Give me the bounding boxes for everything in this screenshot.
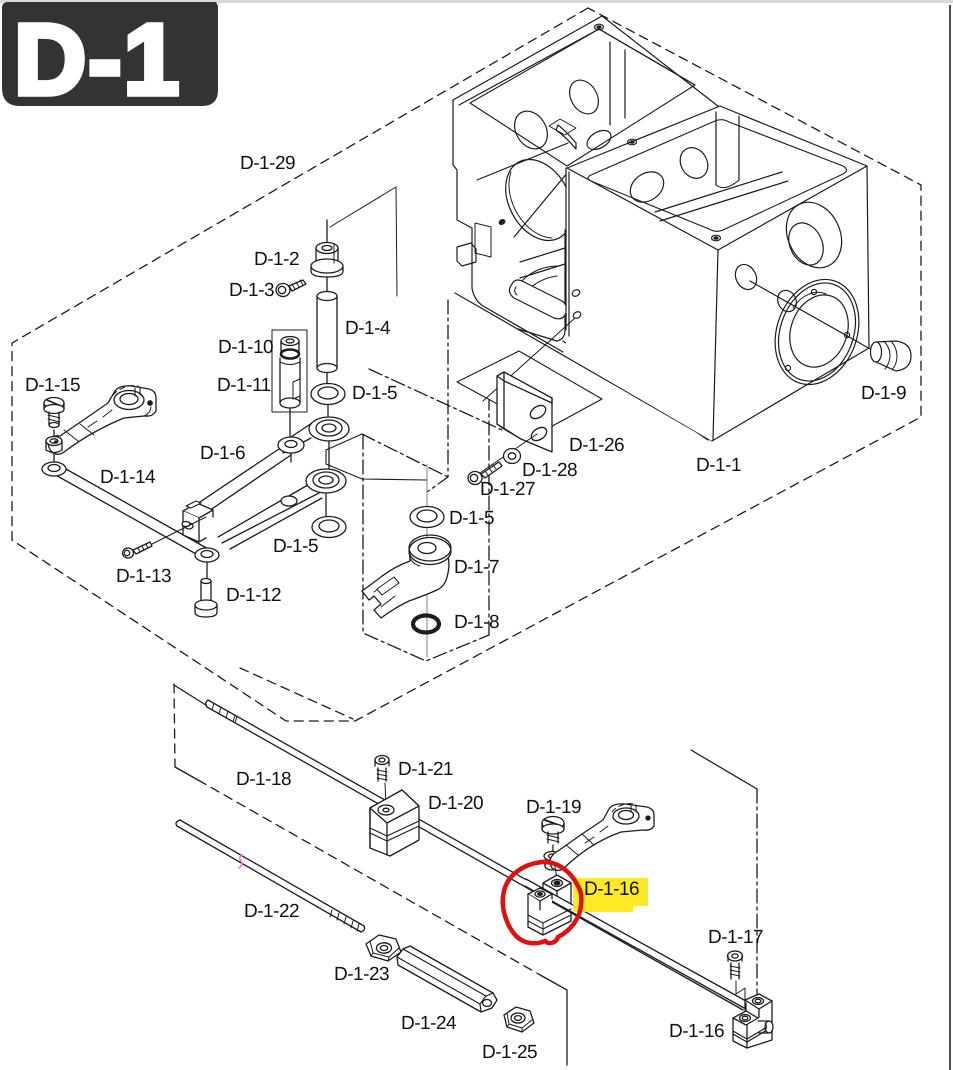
svg-text:D-1-26: D-1-26 — [569, 435, 624, 456]
svg-text:D-1-1: D-1-1 — [696, 455, 741, 476]
svg-text:D-1-24: D-1-24 — [401, 1013, 457, 1034]
svg-text:D-1-29: D-1-29 — [240, 153, 295, 174]
svg-text:D-1-6: D-1-6 — [200, 443, 245, 464]
svg-text:D-1-21: D-1-21 — [398, 759, 453, 780]
svg-text:D-1: D-1 — [14, 4, 181, 116]
svg-text:D-1-20: D-1-20 — [428, 793, 483, 814]
svg-text:D-1-23: D-1-23 — [334, 964, 389, 985]
svg-text:D-1-14: D-1-14 — [100, 467, 156, 488]
svg-text:D-1-3: D-1-3 — [229, 280, 274, 301]
svg-text:D-1-4: D-1-4 — [345, 318, 391, 339]
svg-text:D-1-5: D-1-5 — [273, 536, 318, 557]
svg-text:D-1-12: D-1-12 — [226, 585, 281, 606]
svg-text:D-1-11: D-1-11 — [217, 375, 271, 396]
svg-text:D-1-7: D-1-7 — [454, 557, 499, 578]
svg-text:D-1-10: D-1-10 — [218, 337, 273, 358]
svg-text:D-1-22: D-1-22 — [244, 901, 299, 922]
svg-text:D-1-5: D-1-5 — [352, 383, 397, 404]
svg-text:D-1-18: D-1-18 — [236, 769, 291, 790]
svg-text:D-1-17: D-1-17 — [708, 927, 763, 948]
svg-text:D-1-13: D-1-13 — [116, 566, 171, 587]
svg-text:D-1-16: D-1-16 — [669, 1021, 724, 1042]
svg-text:D-1-28: D-1-28 — [522, 460, 577, 481]
svg-text:D-1-5: D-1-5 — [449, 508, 494, 529]
svg-text:D-1-19: D-1-19 — [526, 797, 581, 818]
svg-text:D-1-15: D-1-15 — [25, 375, 80, 396]
svg-text:D-1-8: D-1-8 — [454, 612, 499, 633]
svg-text:D-1-2: D-1-2 — [254, 249, 299, 270]
svg-text:D-1-25: D-1-25 — [482, 1042, 537, 1063]
svg-text:D-1-9: D-1-9 — [861, 383, 906, 404]
svg-text:D-1-16: D-1-16 — [584, 879, 639, 900]
svg-text:D-1-27: D-1-27 — [480, 479, 535, 500]
